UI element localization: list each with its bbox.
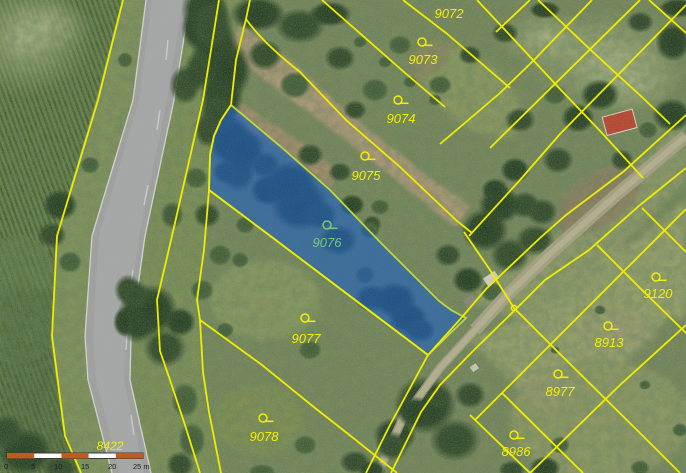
svg-text:20: 20	[108, 462, 116, 471]
svg-text:9120: 9120	[644, 286, 674, 301]
svg-text:9075: 9075	[352, 168, 382, 183]
svg-text:9077: 9077	[292, 331, 322, 346]
svg-text:25 m: 25 m	[133, 462, 150, 471]
svg-text:9076: 9076	[313, 235, 343, 250]
svg-text:8977: 8977	[546, 384, 576, 399]
svg-text:9073: 9073	[409, 52, 439, 67]
svg-text:8986: 8986	[502, 444, 532, 459]
svg-text:0: 0	[4, 462, 8, 471]
svg-text:5: 5	[31, 462, 35, 471]
svg-text:8913: 8913	[595, 335, 625, 350]
svg-text:9074: 9074	[387, 111, 416, 126]
svg-text:8422: 8422	[97, 439, 124, 453]
svg-text:9078: 9078	[250, 429, 280, 444]
svg-text:9072: 9072	[435, 6, 465, 21]
svg-text:10: 10	[54, 462, 62, 471]
svg-text:15: 15	[81, 462, 89, 471]
